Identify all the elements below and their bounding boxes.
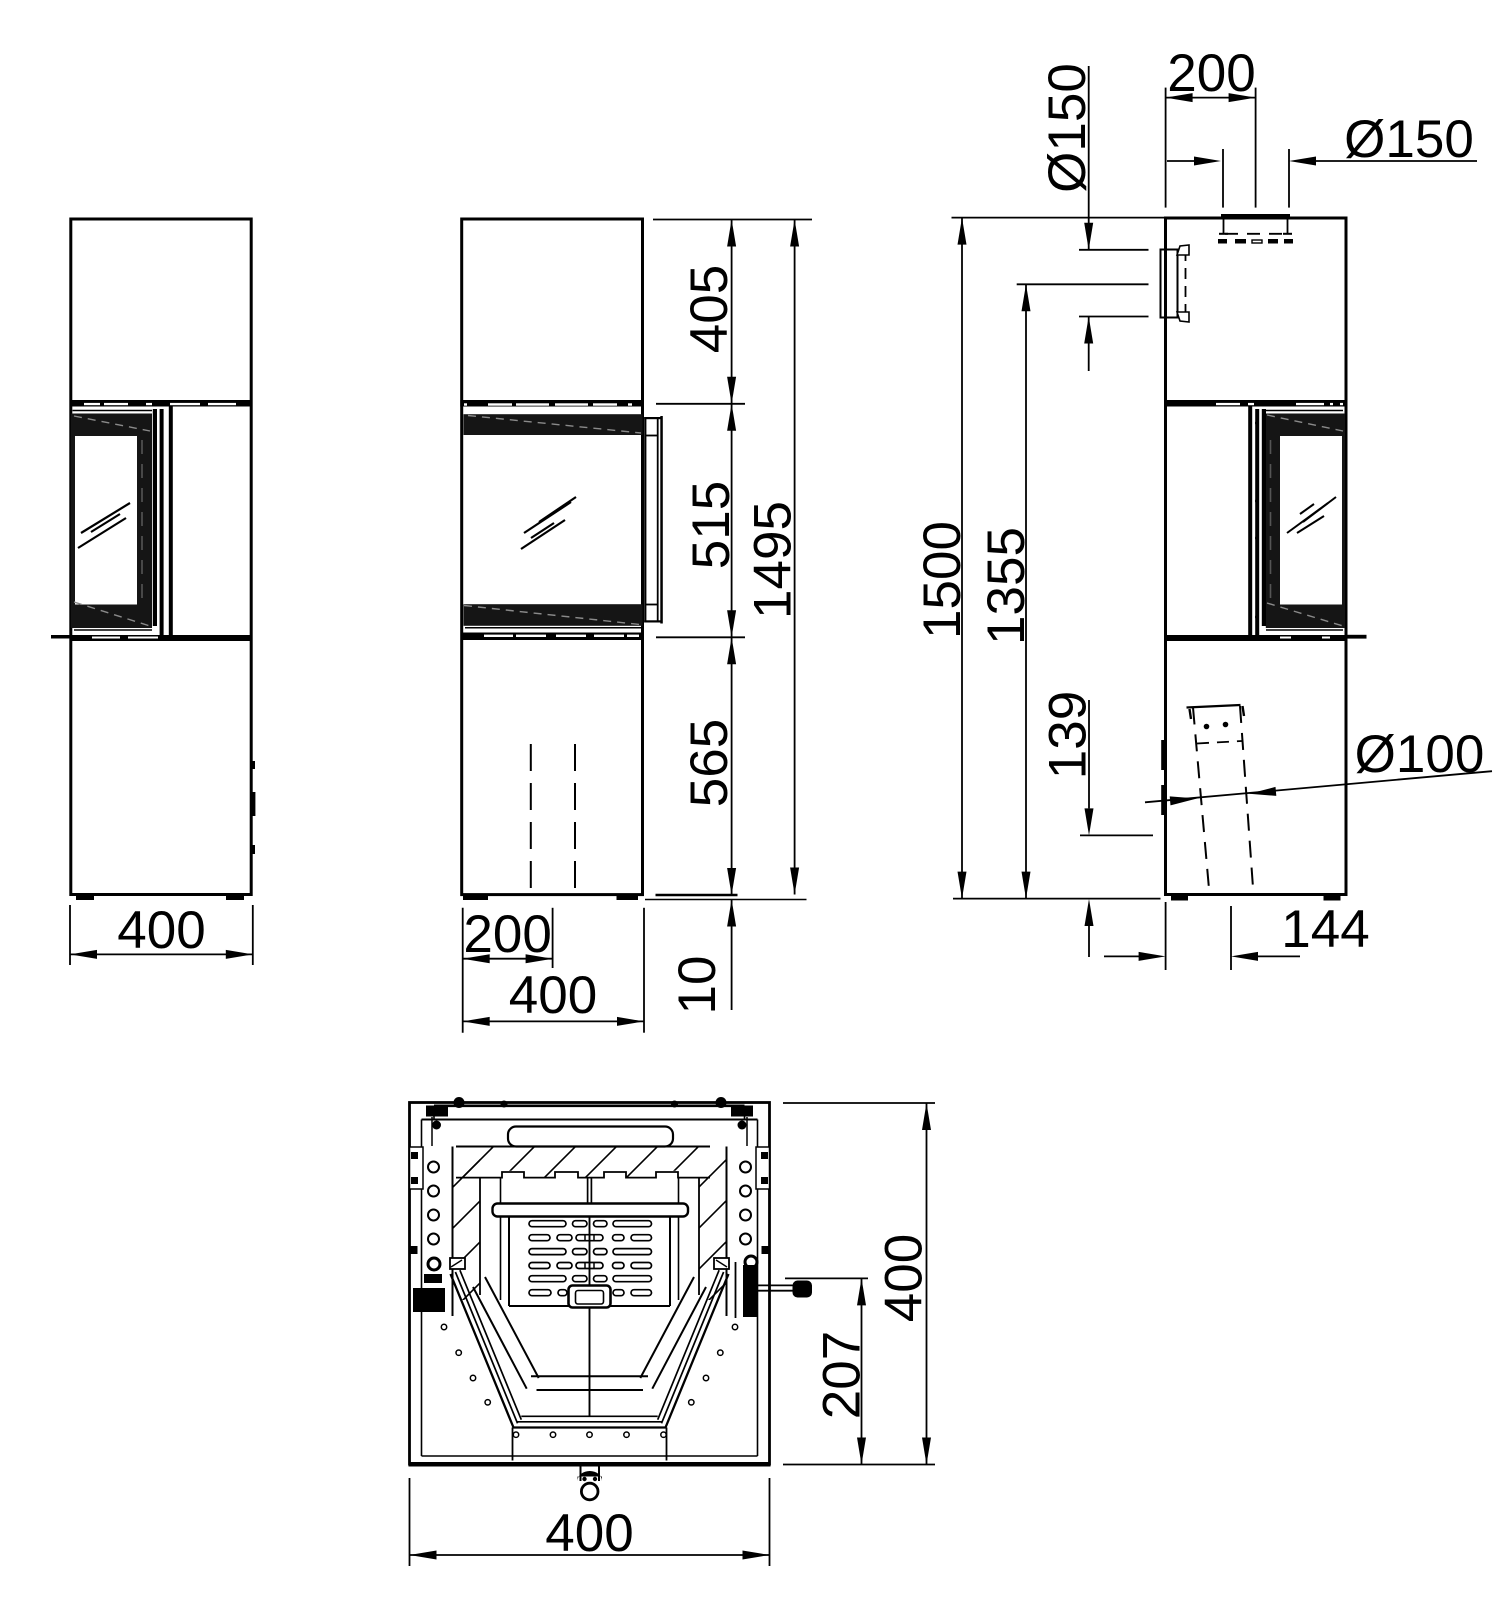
- svg-text:515: 515: [682, 481, 741, 569]
- svg-text:400: 400: [875, 1234, 934, 1322]
- svg-text:400: 400: [545, 1504, 633, 1563]
- svg-text:10: 10: [668, 956, 727, 1015]
- svg-text:200: 200: [1167, 44, 1255, 103]
- svg-text:400: 400: [117, 901, 205, 960]
- svg-text:405: 405: [680, 265, 739, 353]
- svg-text:Ø150: Ø150: [1038, 63, 1097, 193]
- svg-text:144: 144: [1281, 900, 1369, 959]
- svg-text:207: 207: [813, 1331, 872, 1419]
- svg-text:Ø100: Ø100: [1355, 725, 1485, 784]
- svg-text:565: 565: [680, 719, 739, 807]
- svg-text:1495: 1495: [744, 501, 803, 619]
- svg-text:1500: 1500: [913, 521, 972, 639]
- svg-text:139: 139: [1039, 691, 1098, 779]
- svg-text:400: 400: [509, 966, 597, 1025]
- svg-text:1355: 1355: [977, 527, 1036, 645]
- svg-text:Ø150: Ø150: [1344, 110, 1474, 169]
- svg-text:200: 200: [463, 905, 551, 964]
